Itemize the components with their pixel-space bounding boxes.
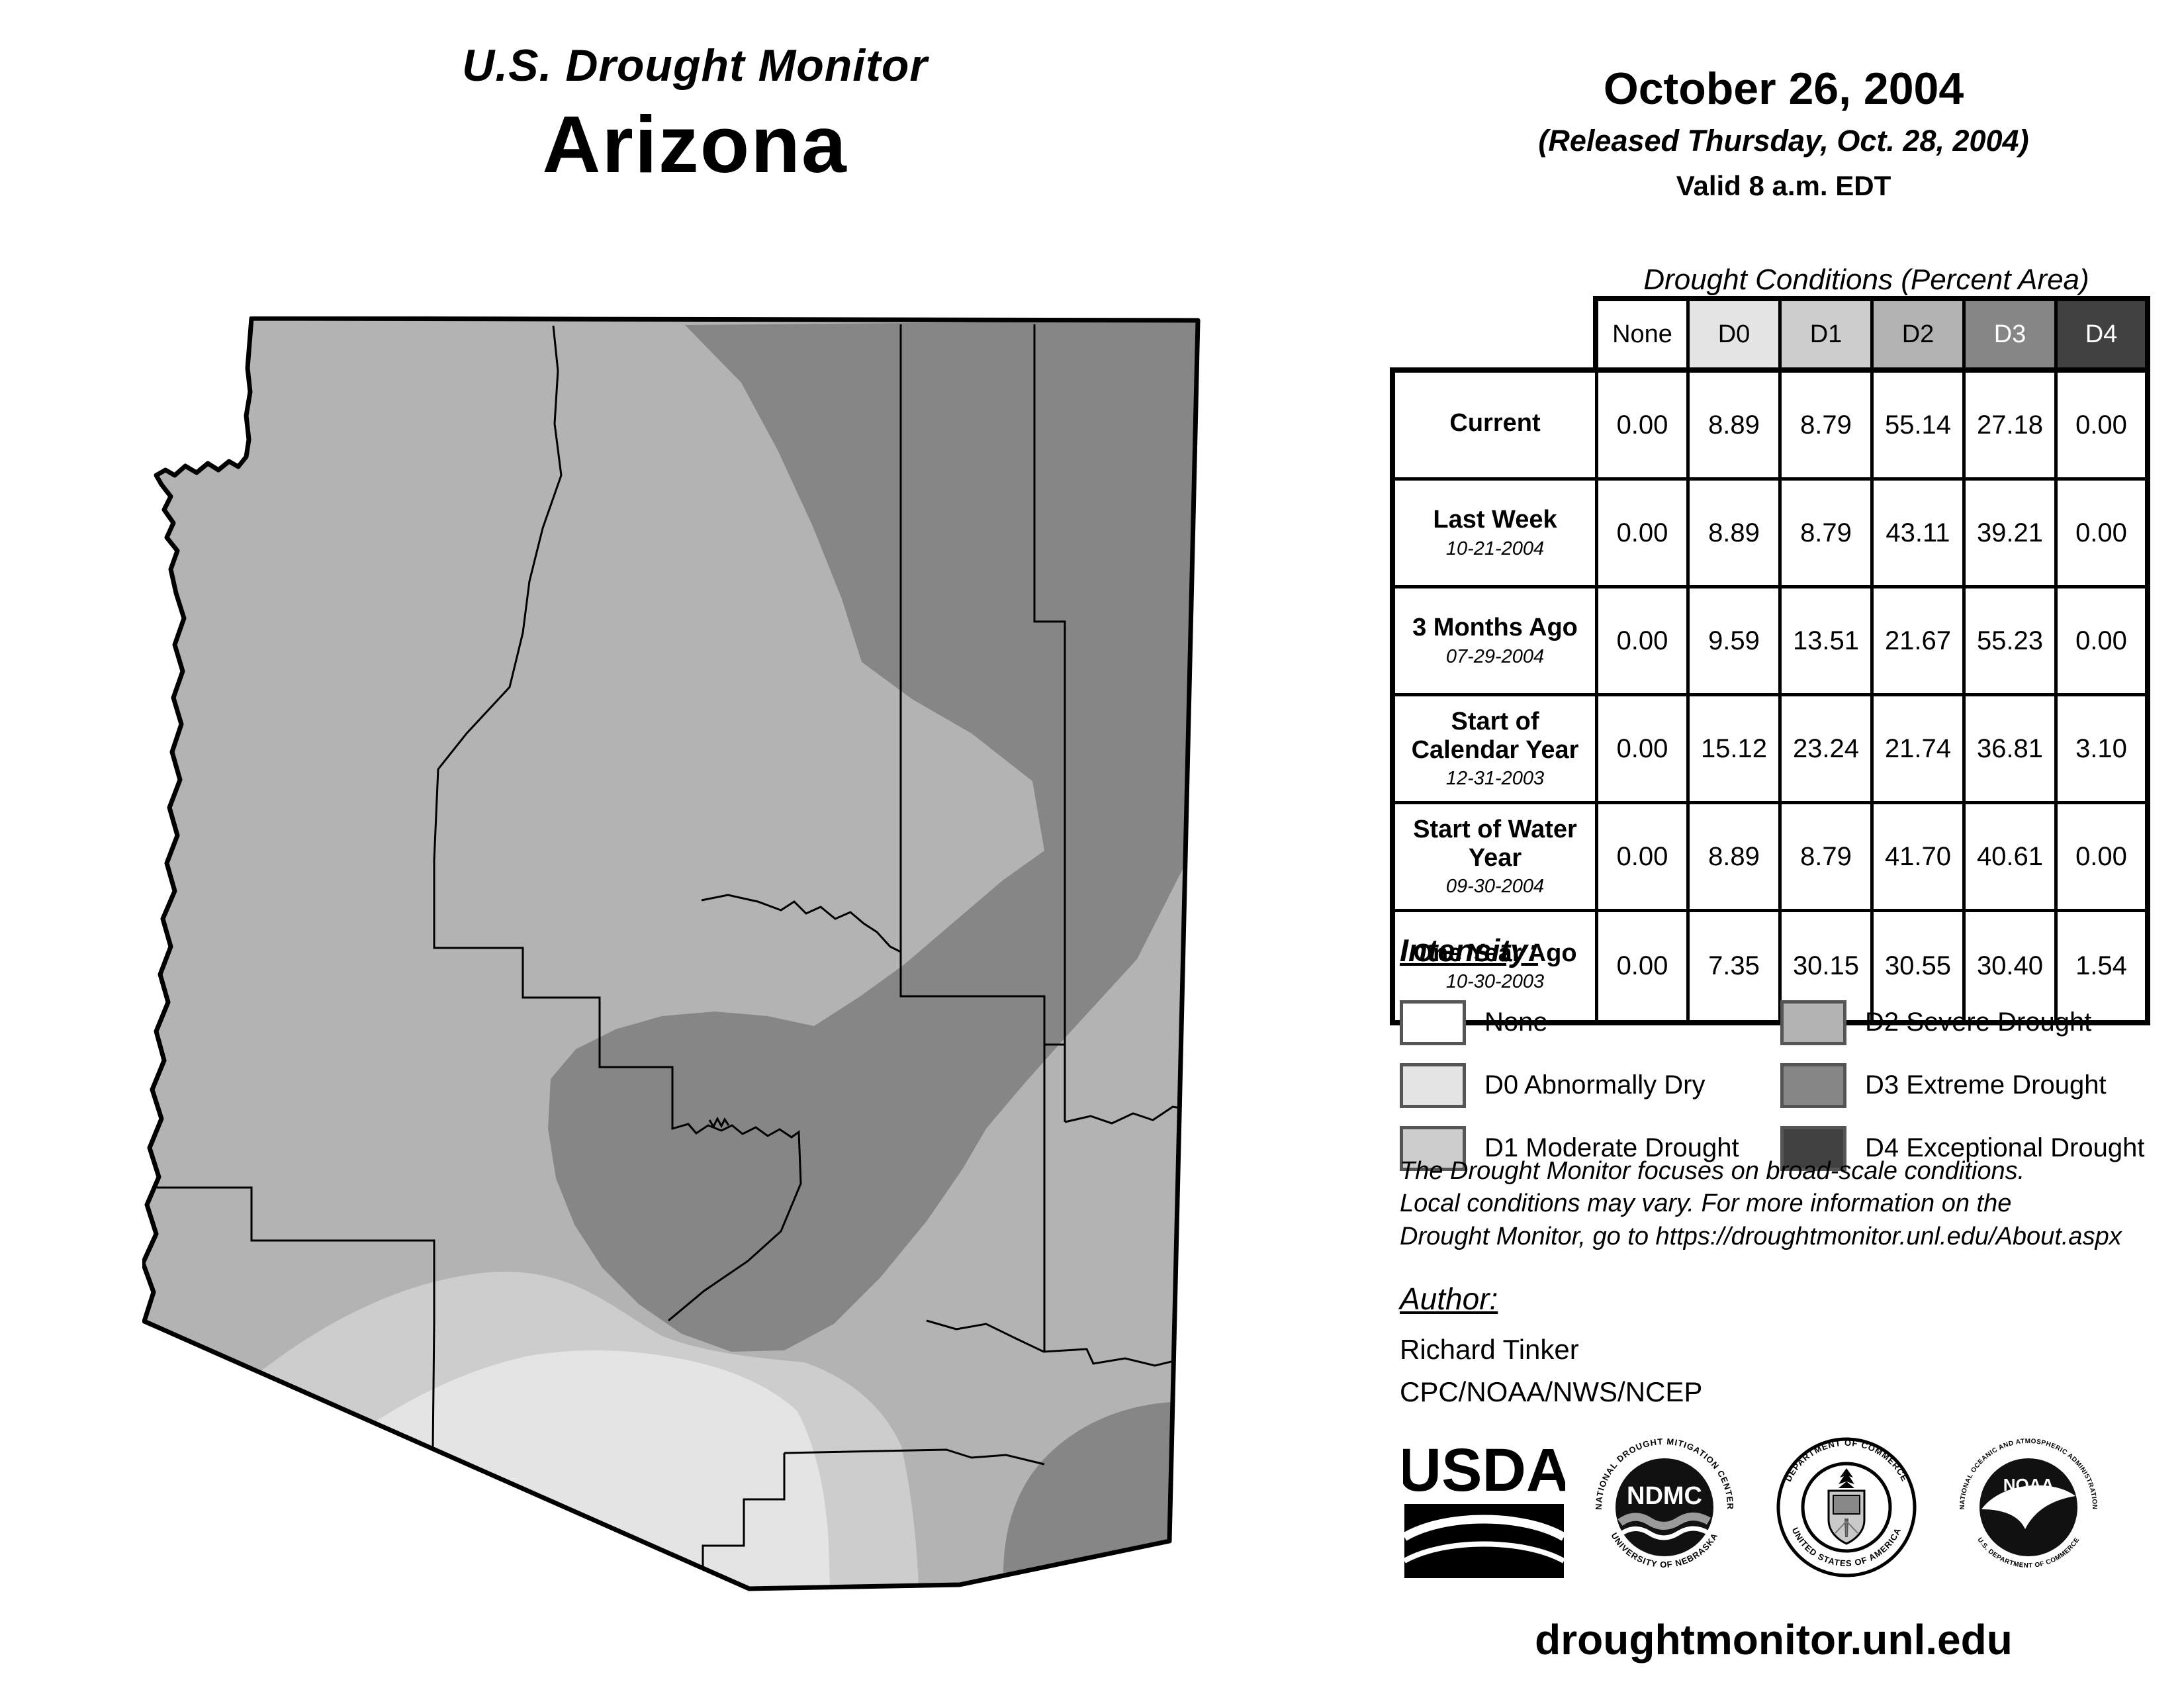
usda-logo: USDA [1403,1430,1565,1585]
cell-scy-d4: 3.10 [2058,696,2145,804]
cell-lastweek-none: 0.00 [1598,481,1690,588]
cell-scy-d1: 23.24 [1782,696,1874,804]
column-header-d1: D1 [1782,301,1874,367]
cell-current-d3: 27.18 [1966,373,2058,481]
cell-swy-d3: 40.61 [1966,804,2058,912]
column-header-none: None [1598,301,1690,367]
cell-scy-d2: 21.74 [1874,696,1966,804]
row-label-start-calendar-year: Start of Calendar Year 12-31-2003 [1395,696,1598,804]
drought-conditions-table: Current 0.00 8.89 8.79 55.14 27.18 0.00 … [1390,367,2150,1025]
release-date: (Released Thursday, Oct. 28, 2004) [1410,124,2158,158]
cell-swy-d2: 41.70 [1874,804,1966,912]
cell-3mo-d3: 55.23 [1966,588,2058,696]
valid-time: Valid 8 a.m. EDT [1410,170,2158,202]
legend-grid: None D2 Severe Drought D0 Abnormally Dry… [1400,991,2167,1180]
date-block: October 26, 2004 (Released Thursday, Oct… [1410,63,2158,202]
d2-swatch [1780,1000,1846,1045]
cell-swy-d0: 8.89 [1690,804,1782,912]
noaa-logo: NATIONAL OCEANIC AND ATMOSPHERIC ADMINIS… [1952,1430,2105,1585]
cell-current-d4: 0.00 [2058,373,2145,481]
cell-scy-none: 0.00 [1598,696,1690,804]
doc-ship-icon [1833,1495,1860,1514]
d3-swatch [1780,1063,1846,1108]
row-label-current: Current [1395,373,1598,481]
cell-3mo-d4: 0.00 [2058,588,2145,696]
column-header-d3: D3 [1966,301,2058,367]
cell-swy-d4: 0.00 [2058,804,2145,912]
column-header-d4: D4 [2058,301,2145,367]
cell-current-d1: 8.79 [1782,373,1874,481]
cell-current-d2: 55.14 [1874,373,1966,481]
title-block: U.S. Drought Monitor Arizona [199,40,1191,191]
state-name: Arizona [199,98,1191,191]
cell-3mo-d2: 21.67 [1874,588,1966,696]
author-heading: Author: [1400,1281,2128,1317]
legend-item-none: None [1400,991,1780,1054]
disclaimer-line-1: The Drought Monitor focuses on broad-sca… [1400,1155,2181,1188]
legend-heading: Intensity: [1400,932,2167,968]
row-label-last-week: Last Week 10-21-2004 [1395,481,1598,588]
map-date: October 26, 2004 [1410,63,2158,115]
row-label-3-months-ago: 3 Months Ago 07-29-2004 [1395,588,1598,696]
cell-3mo-d0: 9.59 [1690,588,1782,696]
cell-3mo-d1: 13.51 [1782,588,1874,696]
usda-wordmark: USDA [1403,1436,1565,1504]
noaa-wordmark: NOAA [2003,1475,2054,1495]
row-label-start-water-year: Start of Water Year 09-30-2004 [1395,804,1598,912]
cell-swy-d1: 8.79 [1782,804,1874,912]
cell-lastweek-d0: 8.89 [1690,481,1782,588]
legend-item-d0: D0 Abnormally Dry [1400,1054,1780,1117]
cell-scy-d0: 15.12 [1690,696,1782,804]
intensity-legend: Intensity: None D2 Severe Drought D0 Abn… [1400,932,2167,1180]
disclaimer-text: The Drought Monitor focuses on broad-sca… [1400,1155,2181,1253]
ndmc-logo: NATIONAL DROUGHT MITIGATION CENTER UNIVE… [1588,1430,1741,1585]
cell-3mo-none: 0.00 [1598,588,1690,696]
ndmc-wordmark: NDMC [1627,1482,1702,1510]
legend-item-d2: D2 Severe Drought [1780,991,2167,1054]
cell-swy-none: 0.00 [1598,804,1690,912]
d0-swatch [1400,1063,1466,1108]
author-name: Richard Tinker [1400,1334,2128,1366]
cell-lastweek-d1: 8.79 [1782,481,1874,588]
arizona-drought-map [142,316,1201,1594]
report-title: U.S. Drought Monitor [199,40,1191,91]
table-header-row: None D0 D1 D2 D3 D4 [1593,296,2150,373]
cell-scy-d3: 36.81 [1966,696,2058,804]
department-of-commerce-seal: DEPARTMENT OF COMMERCE UNITED STATES OF … [1770,1430,1923,1585]
cell-current-d0: 8.89 [1690,373,1782,481]
cell-lastweek-d2: 43.11 [1874,481,1966,588]
author-org: CPC/NOAA/NWS/NCEP [1400,1376,2128,1408]
column-header-d2: D2 [1874,301,1966,367]
cell-lastweek-d4: 0.00 [2058,481,2145,588]
table-title: Drought Conditions (Percent Area) [1575,263,2158,297]
none-swatch [1400,1000,1466,1045]
drought-monitor-report: U.S. Drought Monitor Arizona Octob [0,0,2184,1688]
cell-lastweek-d3: 39.21 [1966,481,2058,588]
disclaimer-line-2: Local conditions may vary. For more info… [1400,1188,2181,1220]
legend-item-d3: D3 Extreme Drought [1780,1054,2167,1117]
disclaimer-line-3: Drought Monitor, go to https://droughtmo… [1400,1221,2181,1253]
cell-current-none: 0.00 [1598,373,1690,481]
footer-url: droughtmonitor.unl.edu [1390,1615,2158,1664]
d0-abnormally-dry-region [374,1350,830,1589]
author-block: Author: Richard Tinker CPC/NOAA/NWS/NCEP [1400,1281,2128,1408]
column-header-d0: D0 [1690,301,1782,367]
